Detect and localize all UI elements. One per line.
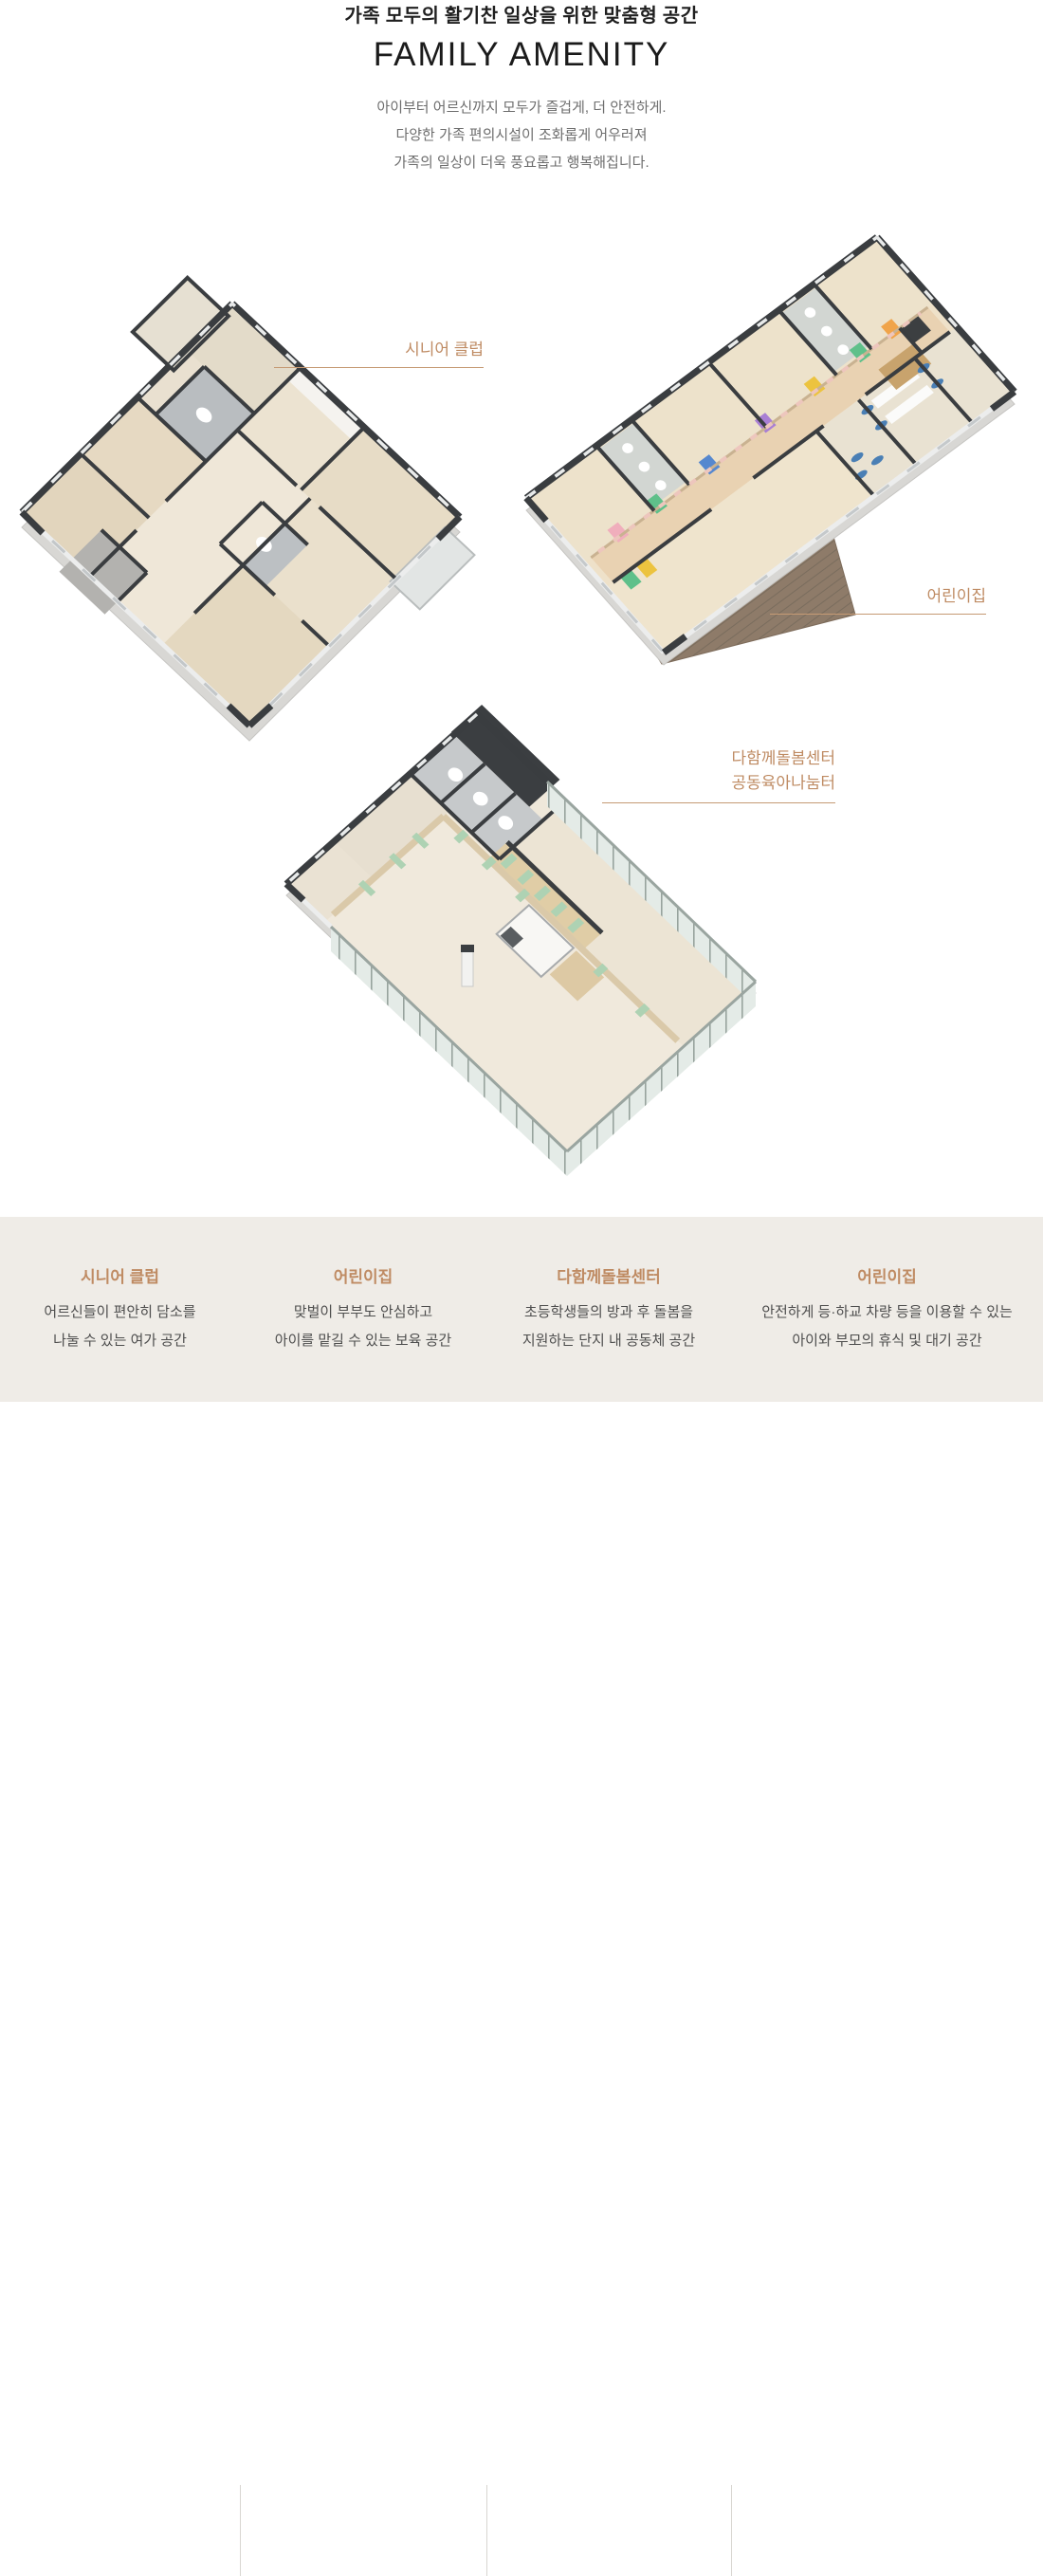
footer-item-description: 초등학생들의 방과 후 돌봄을 지원하는 단지 내 공동체 공간 xyxy=(486,1298,731,1355)
column xyxy=(462,948,473,986)
plan-label-daycare: 어린이집 xyxy=(770,587,986,615)
plan-label-care-center: 다함께돌봄센터 공동육아나눔터 xyxy=(602,746,835,803)
footer-item-title: 시니어 클럽 xyxy=(0,1266,240,1289)
footer-item-description: 어르신들이 편안히 담소를 나눌 수 있는 여가 공간 xyxy=(0,1298,240,1355)
footer-item-title: 다함께돌봄센터 xyxy=(486,1266,731,1289)
footer-item-senior-club: 시니어 클럽 어르신들이 편안히 담소를 나눌 수 있는 여가 공간 xyxy=(0,1217,240,1402)
plan-label-text: 다함께돌봄센터 xyxy=(602,746,835,771)
footer-item-title: 어린이집 xyxy=(731,1266,1043,1289)
plan-label-text: 어린이집 xyxy=(926,587,986,605)
footer-item-description: 맞벌이 부부도 안심하고 아이를 맡길 수 있는 보육 공간 xyxy=(240,1298,486,1355)
footer-item-care-center: 다함께돌봄센터 초등학생들의 방과 후 돌봄을 지원하는 단지 내 공동체 공간 xyxy=(486,1217,731,1402)
footer-item-daycare: 어린이집 맞벌이 부부도 안심하고 아이를 맡길 수 있는 보육 공간 xyxy=(240,1217,486,1402)
plan-label-text: 공동육아나눔터 xyxy=(602,771,835,796)
divider xyxy=(486,2485,487,2576)
footer-item-description: 안전하게 등·하교 차량 등을 이용할 수 있는 아이와 부모의 휴식 및 대기… xyxy=(731,1298,1043,1355)
footer-item-title: 어린이집 xyxy=(240,1266,486,1289)
divider xyxy=(731,2485,732,2576)
floorplans-illustration xyxy=(0,0,1043,1402)
plan-label-text: 시니어 클럽 xyxy=(405,340,484,359)
divider xyxy=(240,2485,241,2576)
footer-item-daycare-waiting: 어린이집 안전하게 등·하교 차량 등을 이용할 수 있는 아이와 부모의 휴식… xyxy=(731,1217,1043,1402)
plan-label-senior-club: 시니어 클럽 xyxy=(274,340,484,368)
amenity-summary-section: 시니어 클럽 어르신들이 편안히 담소를 나눌 수 있는 여가 공간 어린이집 … xyxy=(0,1217,1043,1402)
